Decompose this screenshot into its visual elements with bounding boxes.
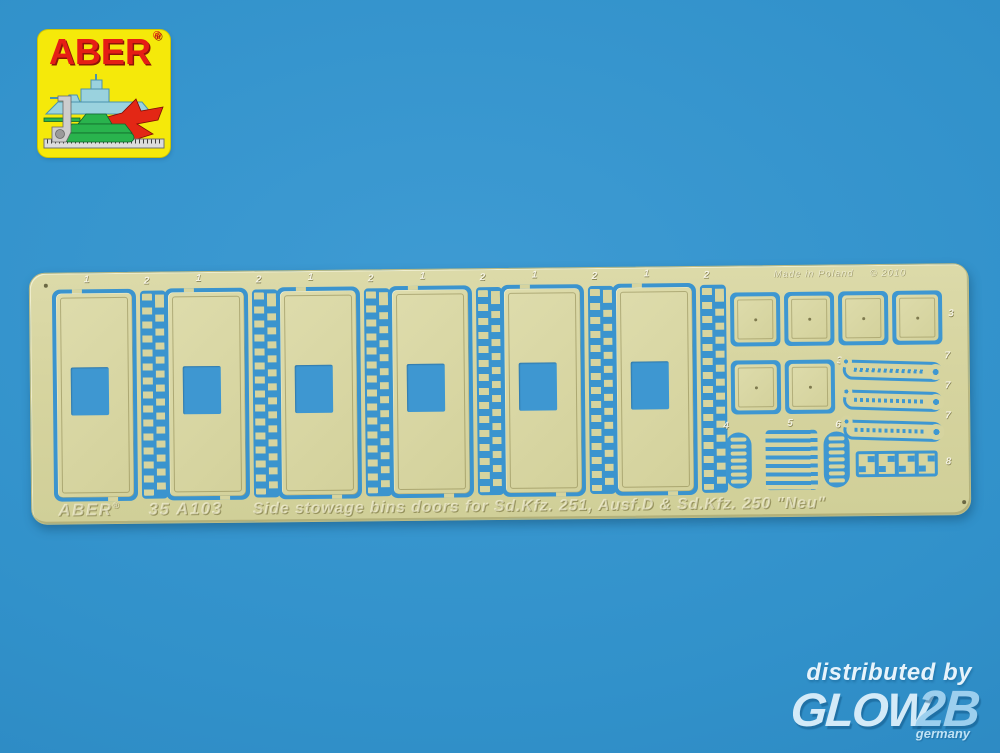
hinge-link <box>829 450 845 454</box>
hinge-link-cluster <box>725 432 752 488</box>
hinge-link <box>829 471 845 475</box>
long-hinge-part <box>842 359 943 382</box>
part-number-label: 2 <box>704 270 710 281</box>
small-parts-section: 3 3 7 7 7 4 5 6 <box>730 278 968 506</box>
small-door <box>896 294 938 340</box>
part-number-label: 1 <box>308 272 314 283</box>
panel-window-hole <box>295 365 334 413</box>
hinge-slots <box>142 294 154 496</box>
small-door <box>734 296 776 342</box>
etched-brand: ABER <box>58 500 112 520</box>
part-number-label: 1 <box>420 271 426 282</box>
small-door <box>735 364 777 410</box>
bracket-row <box>856 450 938 477</box>
part-number-label: 2 <box>592 271 598 282</box>
long-hinge-part <box>843 389 944 412</box>
bracket-part <box>859 454 875 474</box>
small-door <box>788 296 830 342</box>
panel-window-hole <box>183 366 222 414</box>
door-units: 1 2 1 2 1 2 1 2 <box>52 266 754 513</box>
hinge-slots <box>702 288 714 490</box>
hinge-link-cluster <box>823 431 850 487</box>
part-number-label: 1 <box>84 274 90 285</box>
hinge-slots <box>714 288 726 490</box>
panel-window-hole <box>71 367 110 415</box>
hinge-link <box>731 479 747 483</box>
part-number-label: 6 <box>835 419 841 430</box>
hinge-teeth <box>846 392 940 409</box>
bracket-part <box>879 454 895 474</box>
door-panel-cutline <box>276 286 362 499</box>
hinge-link <box>731 472 747 476</box>
door-unit: 1 2 <box>164 271 280 504</box>
door-panel-cutline <box>164 288 250 501</box>
part-number-label: 4 <box>723 421 729 432</box>
part-number-label: 7 <box>945 380 951 391</box>
aber-logo-art <box>42 72 166 150</box>
etched-description: Side stowage bins doors for Sd.Kfz. 251,… <box>253 495 826 518</box>
aber-brand: ABER <box>49 31 151 72</box>
2b-text: 2B <box>915 680 980 737</box>
door-panel <box>168 292 246 497</box>
part-number-label: 5 <box>787 418 793 429</box>
part-number-label: 2 <box>480 272 486 283</box>
small-door-panel <box>892 290 943 345</box>
part-number-label: 1 <box>196 273 202 284</box>
tooling-hole <box>44 284 48 288</box>
small-door-panel <box>784 291 835 346</box>
hinge-link <box>829 478 845 482</box>
hinge-link <box>829 443 845 447</box>
door-panel <box>280 291 358 496</box>
bracket-part <box>899 454 915 474</box>
hinge-teeth <box>846 362 940 379</box>
hinge-link <box>731 451 747 455</box>
part-number-label: 2 <box>368 273 374 284</box>
door-panel <box>392 289 470 494</box>
etched-product-code: 35 A103 <box>148 499 222 519</box>
door-panel-cutline <box>388 285 474 498</box>
panel-window-hole <box>407 364 446 412</box>
distributor-brand: GLOW2B <box>789 687 979 730</box>
part-number-label: 7 <box>945 350 951 361</box>
latch-bar-stack <box>765 430 818 491</box>
hinge-link <box>730 437 746 441</box>
part-number-label: 8 <box>946 456 952 467</box>
door-panel <box>616 287 694 492</box>
bracket-part <box>919 453 935 473</box>
door-panel-cutline <box>612 283 698 496</box>
hinge-slots <box>366 291 378 493</box>
copyright-label: © 2010 <box>870 268 907 279</box>
hinge-link <box>731 458 747 462</box>
small-door-panel <box>730 292 781 347</box>
panel-window-hole <box>519 362 558 410</box>
hinge-link <box>731 444 747 448</box>
door-unit: 1 2 <box>500 268 616 501</box>
made-in-label: Made in Poland <box>774 268 854 280</box>
part-number-label: 3 <box>948 308 954 319</box>
small-door <box>842 295 884 341</box>
hinge-link <box>731 465 747 469</box>
small-door-panel <box>838 291 889 346</box>
small-door-panel <box>731 360 782 415</box>
aber-brand-text: ABER® <box>40 33 168 71</box>
hinge-strip <box>700 285 728 493</box>
etched-registered: ® <box>112 500 120 510</box>
small-door <box>789 364 831 410</box>
part-number-label: 1 <box>644 268 650 279</box>
photo-etched-fret: Made in Poland© 2010 1 2 1 2 1 2 <box>29 263 972 525</box>
small-door-panel <box>785 359 836 414</box>
door-panel-cutline <box>52 289 138 502</box>
part-number-label: 7 <box>945 410 951 421</box>
hinge-link <box>828 436 844 440</box>
hinge-link <box>829 457 845 461</box>
door-panel-cutline <box>500 284 586 497</box>
registered-trademark-icon: ® <box>153 30 161 42</box>
door-panel <box>56 293 134 498</box>
door-unit: 1 2 <box>276 270 392 503</box>
part-number-label: 2 <box>256 274 262 285</box>
distributor-logo: distributed by GLOW2B germany <box>791 659 978 741</box>
hinge-slots <box>478 290 490 492</box>
hinge-teeth <box>846 422 940 439</box>
part-number-label: 1 <box>532 270 538 281</box>
door-unit: 1 2 <box>612 267 728 500</box>
long-hinge-part <box>843 419 944 442</box>
aber-logo: ABER® <box>38 30 170 157</box>
panel-window-hole <box>631 361 670 409</box>
door-unit: 1 2 <box>388 269 504 502</box>
hinge-slots <box>590 289 602 491</box>
hinge-link <box>829 464 845 468</box>
product-photo: ABER® <box>0 0 1000 753</box>
door-panel <box>504 288 582 493</box>
part-number-label: 2 <box>144 276 150 287</box>
glow-text: GLOW <box>789 683 931 736</box>
hinge-slots <box>254 292 266 494</box>
door-unit: 1 2 <box>52 272 168 505</box>
